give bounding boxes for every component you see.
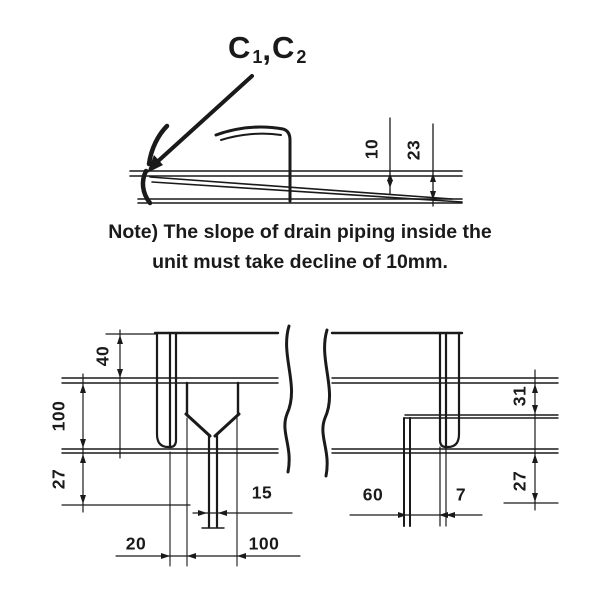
callout-c2: C <box>272 30 295 65</box>
break-line <box>285 326 292 472</box>
arrowhead-icon <box>387 180 393 188</box>
funnel-slope <box>186 414 210 436</box>
funnel-slope <box>215 414 239 436</box>
dim-label-right-27: 27 <box>510 471 531 491</box>
arrowhead-icon <box>80 384 86 393</box>
dim-label-bottom-100: 100 <box>249 534 280 555</box>
arrowhead-icon <box>80 454 86 463</box>
pan-edge-upper-curve <box>149 126 167 164</box>
slope-line <box>150 177 452 199</box>
callout-label-c1-c2: C1,C2 <box>228 30 306 66</box>
arrowhead-icon <box>532 493 538 502</box>
arrowhead-icon <box>237 553 246 559</box>
arrowhead-icon <box>387 173 393 181</box>
drain-piping-figure: C1,C2 10 23 Note) The slope of drain pip… <box>0 0 600 600</box>
arrowhead-icon <box>80 439 86 448</box>
arrowhead-icon <box>161 553 170 559</box>
callout-separator: , <box>262 32 272 67</box>
callout-leader-line <box>156 76 252 163</box>
arrowhead-icon <box>532 384 538 393</box>
right-tab-outline <box>446 333 459 447</box>
dim-label-15: 15 <box>252 483 272 504</box>
arrowhead-icon <box>198 510 207 516</box>
dim-label-left-100: 100 <box>49 401 70 432</box>
note-text: Note) The slope of drain piping inside t… <box>0 217 600 277</box>
left-tab-outline <box>157 333 170 447</box>
arrowhead-icon <box>80 495 86 504</box>
dim-label-31: 31 <box>510 386 531 406</box>
bottom-diagram-drawing <box>62 326 558 566</box>
callout-c1: C <box>228 30 251 65</box>
dim-label-decline-10: 10 <box>362 139 383 159</box>
note-line-2: unit must take decline of 10mm. <box>0 247 600 277</box>
arrowhead-icon <box>218 510 227 516</box>
arrowhead-icon <box>532 405 538 414</box>
dim-label-total-23: 23 <box>404 140 425 160</box>
callout-sub2: 2 <box>296 47 307 67</box>
arrowhead-icon <box>532 454 538 463</box>
arrowhead-icon <box>117 335 123 344</box>
pipe-inner-line <box>221 134 281 140</box>
dim-label-20: 20 <box>126 534 146 555</box>
dim-label-40: 40 <box>93 346 114 366</box>
note-line-1: Note) The slope of drain piping inside t… <box>0 217 600 247</box>
dim-label-7: 7 <box>456 485 466 506</box>
arrowhead-icon <box>117 369 123 378</box>
arrowhead-icon <box>398 512 407 518</box>
arrowhead-icon <box>430 173 436 182</box>
break-line <box>323 330 330 476</box>
diagram-canvas <box>0 0 600 600</box>
arrowhead-icon <box>187 553 196 559</box>
dim-label-60: 60 <box>363 485 383 506</box>
dim-label-left-27: 27 <box>49 469 70 489</box>
